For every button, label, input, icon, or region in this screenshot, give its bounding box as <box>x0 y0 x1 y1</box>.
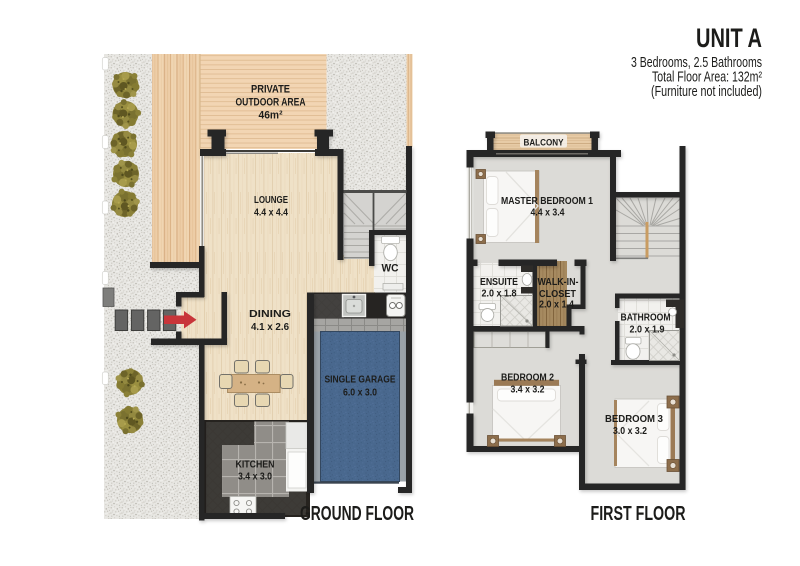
svg-text:DINING: DINING <box>249 308 291 320</box>
svg-text:KITCHEN: KITCHEN <box>236 459 275 471</box>
svg-text:BATHROOM: BATHROOM <box>621 312 671 324</box>
svg-text:46m²: 46m² <box>259 110 283 122</box>
svg-text:PRIVATE: PRIVATE <box>251 84 290 96</box>
svg-text:2.0 x 1.4: 2.0 x 1.4 <box>539 299 574 311</box>
svg-text:BALCONY: BALCONY <box>524 138 565 149</box>
svg-text:2.0 x 1.8: 2.0 x 1.8 <box>482 288 517 300</box>
svg-text:3.4 x 3.2: 3.4 x 3.2 <box>511 384 545 396</box>
svg-text:BEDROOM 3: BEDROOM 3 <box>605 413 663 425</box>
svg-text:GROUND FLOOR: GROUND FLOOR <box>300 503 414 525</box>
svg-text:(Furniture not included): (Furniture not included) <box>651 84 762 100</box>
svg-text:4.4 x 3.4: 4.4 x 3.4 <box>531 207 565 219</box>
svg-text:LOUNGE: LOUNGE <box>254 194 288 206</box>
svg-text:FIRST FLOOR: FIRST FLOOR <box>591 503 686 525</box>
svg-text:MASTER BEDROOM 1: MASTER BEDROOM 1 <box>501 195 593 207</box>
svg-text:WALK-IN-: WALK-IN- <box>538 276 579 288</box>
svg-text:4.1 x 2.6: 4.1 x 2.6 <box>251 321 289 333</box>
svg-text:BEDROOM 2: BEDROOM 2 <box>501 372 554 384</box>
svg-text:3.4 x 3.0: 3.4 x 3.0 <box>238 471 272 483</box>
svg-text:6.0 x 3.0: 6.0 x 3.0 <box>343 387 377 399</box>
svg-text:4.4 x 4.4: 4.4 x 4.4 <box>254 207 288 219</box>
svg-text:ENSUITE: ENSUITE <box>480 276 518 288</box>
svg-text:OUTDOOR AREA: OUTDOOR AREA <box>236 97 306 109</box>
svg-text:SINGLE GARAGE: SINGLE GARAGE <box>325 374 396 386</box>
svg-text:3.0 x 3.2: 3.0 x 3.2 <box>613 425 647 437</box>
svg-text:UNIT A: UNIT A <box>696 23 762 53</box>
svg-text:2.0 x 1.9: 2.0 x 1.9 <box>630 324 665 336</box>
svg-text:WC: WC <box>382 263 399 275</box>
